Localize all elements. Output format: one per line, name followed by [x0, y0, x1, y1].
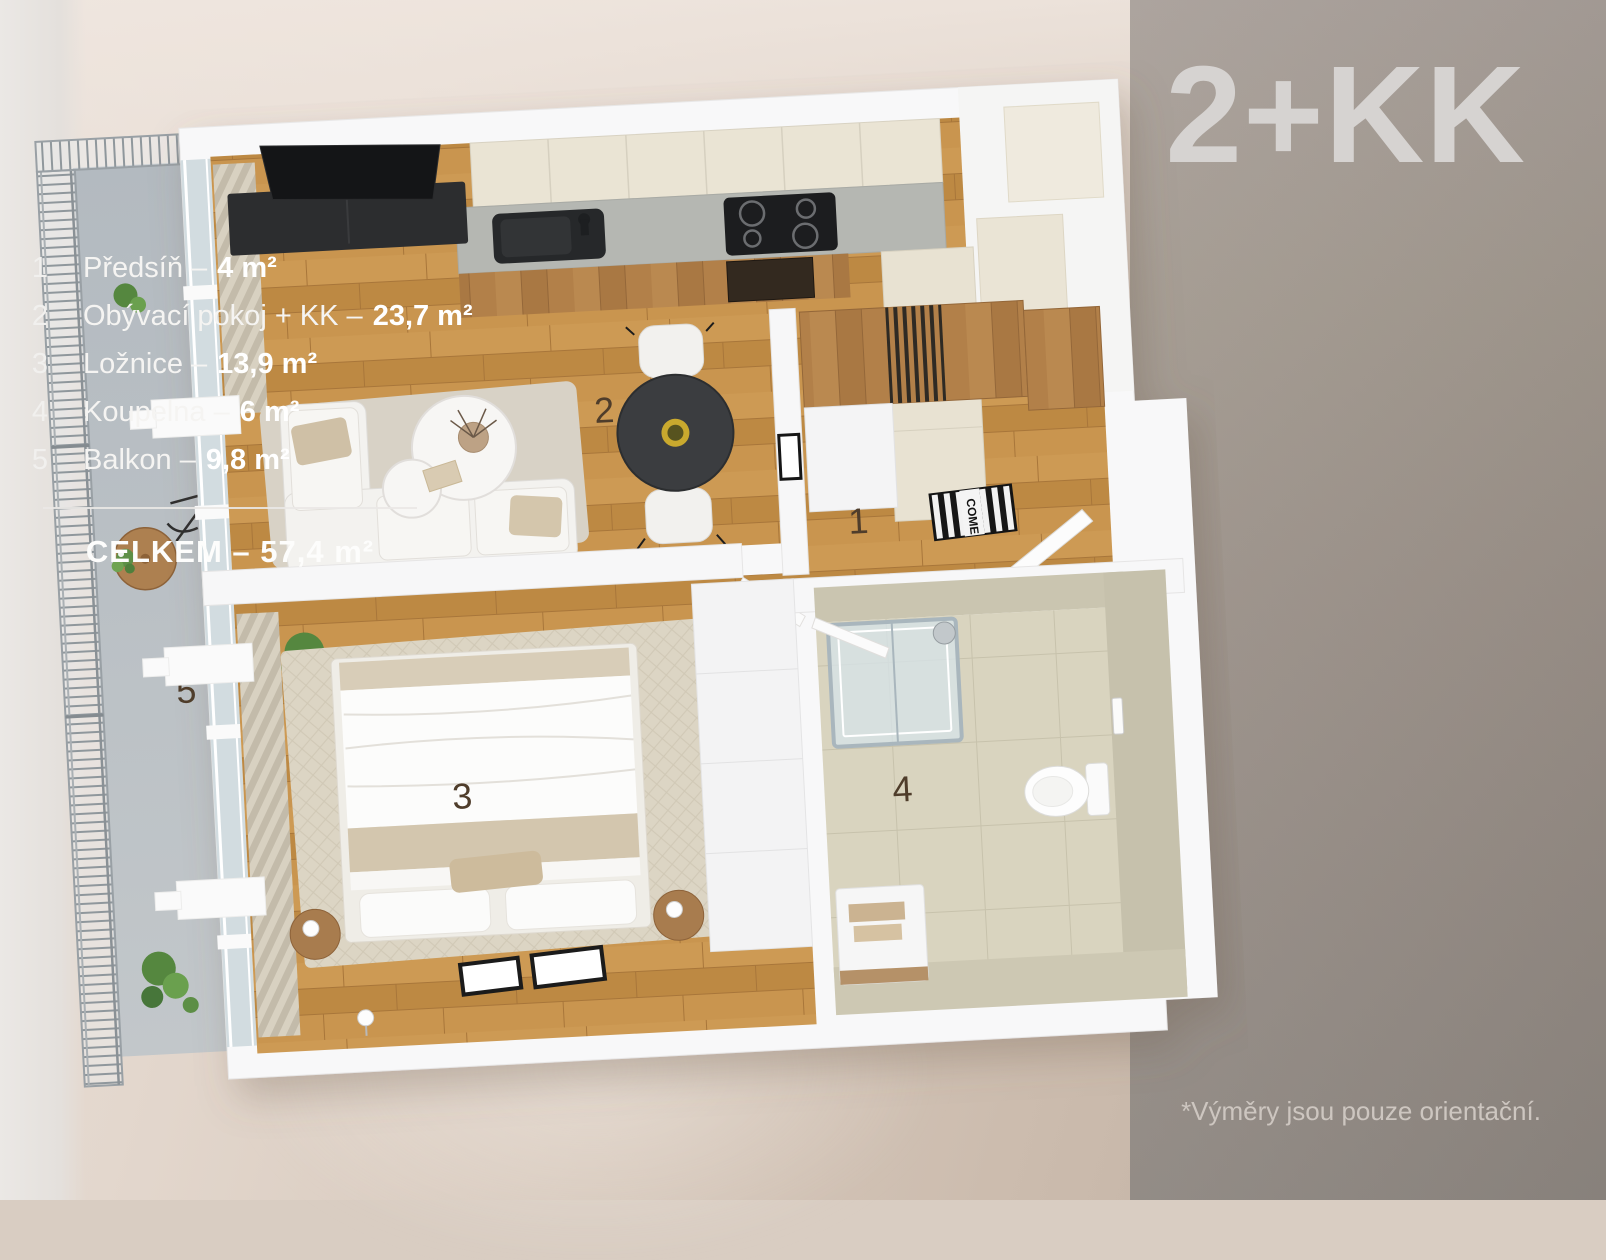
disclaimer-text: *Výměry jsou pouze orientační. [1136, 1096, 1586, 1127]
legend-area: 4 m² [217, 252, 277, 285]
legend-number: 2 [18, 300, 62, 333]
legend-number: 4 [18, 396, 62, 429]
total-area-text: CELKEM – 57,4 m² [43, 534, 417, 570]
legend-label: Koupelna – [83, 396, 230, 429]
legend-row: 3 Ložnice – 13,9 m² [0, 348, 476, 396]
legend-area: 23,7 m² [373, 300, 473, 333]
bathroom: 4 [810, 569, 1188, 1015]
lamp [302, 920, 319, 937]
legend-number: 1 [18, 252, 62, 285]
wardrobe-slats [885, 305, 946, 404]
legend-row: 5 Balkon – 9,8 m² [0, 444, 476, 492]
legend-number: 3 [18, 348, 62, 381]
towels [848, 901, 905, 922]
room-label-2: 2 [593, 389, 615, 431]
floorplan-render: 5 [18, 57, 1251, 1167]
legend-row: 1 Předsíň – 4 m² [0, 252, 476, 300]
legend-row: 2 Obývací pokoj + KK – 23,7 m² [0, 300, 476, 348]
legend-divider [43, 507, 417, 509]
pillow [505, 880, 637, 931]
kitchen-sink [492, 208, 606, 264]
legend-area: 9,8 m² [206, 444, 290, 477]
picture-frame [779, 434, 801, 479]
pillow [359, 887, 491, 938]
legend-label: Obývací pokoj + KK – [83, 300, 363, 333]
room-label-3: 3 [451, 775, 473, 817]
legend-label: Ložnice – [83, 348, 207, 381]
welcome-mat: COME [930, 484, 1017, 540]
room-legend: 1 Předsíň – 4 m² 2 Obývací pokoj + KK – … [0, 252, 476, 492]
bed [331, 643, 651, 943]
dining-chair [638, 323, 705, 378]
room-label-4: 4 [891, 768, 913, 810]
shower-head [933, 621, 956, 644]
legend-row: 4 Koupelna – 6 m² [0, 396, 476, 444]
legend-label: Balkon – [83, 444, 196, 477]
legend-label: Předsíň – [83, 252, 207, 285]
lamp [666, 901, 683, 918]
room-label-1: 1 [847, 500, 869, 542]
dining-chair [644, 487, 713, 544]
legend-area: 13,9 m² [217, 348, 317, 381]
shoe-cabinet [804, 403, 897, 511]
bathroom-cabinet [836, 884, 929, 984]
tv [260, 137, 443, 208]
flush-plate [1112, 698, 1124, 734]
bedroom-wardrobe [691, 579, 812, 952]
legend-area: 6 m² [240, 396, 300, 429]
apartment-type-title: 2+KK [1165, 46, 1526, 184]
legend-number: 5 [18, 444, 62, 477]
cooktop [723, 192, 838, 256]
oven [727, 257, 815, 301]
